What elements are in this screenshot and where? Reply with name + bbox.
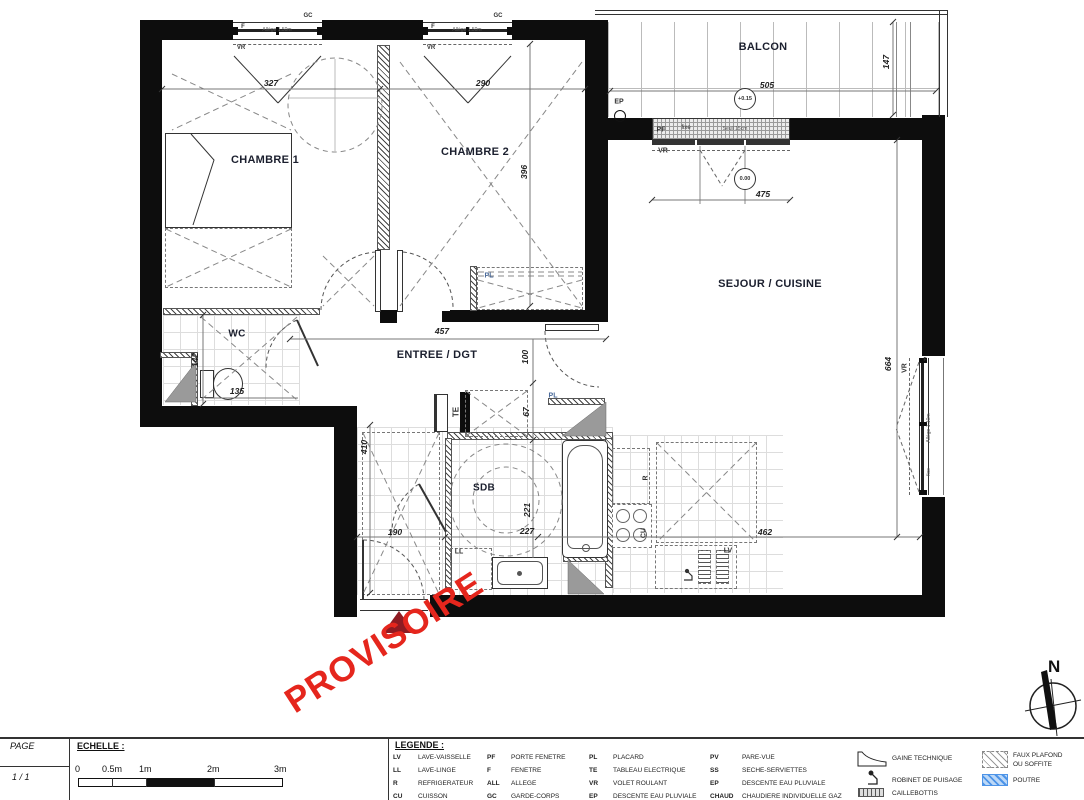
dim-327: 327 <box>264 78 278 88</box>
legend-symbol-label: ROBINET DE PUISAGE <box>892 777 962 784</box>
balcony-rail <box>939 10 940 117</box>
titleblock-line <box>0 737 1084 739</box>
partition-wall <box>470 266 477 311</box>
scale-tick-label: 2m <box>207 764 220 774</box>
floor-plan-page: CHAMBRE 1 CHAMBRE 2 BALCON SEJOUR / CUIS… <box>0 0 1084 800</box>
window-frame <box>423 27 428 35</box>
soffit-outline <box>362 432 440 595</box>
faux-plafond-icon <box>982 751 1008 768</box>
legend-label: DESCENTE EAU PLUVIALE <box>742 780 825 787</box>
dim-190: 190 <box>388 527 402 537</box>
door-leaf <box>397 250 403 312</box>
dim-147: 147 <box>881 55 891 69</box>
wall-segment <box>322 20 423 40</box>
dim-457: 457 <box>435 326 449 336</box>
legend-abbr: PF <box>487 754 495 761</box>
legend-label: SECHE-SERVIETTES <box>742 767 807 774</box>
hob-burner <box>616 509 630 523</box>
ep-label: EP <box>614 99 623 106</box>
te-label: TE <box>452 407 461 417</box>
dim-142: 142 <box>190 353 200 367</box>
sink-faucet <box>517 571 522 576</box>
legend-abbr: VR <box>589 780 598 787</box>
room-label-chambre2: CHAMBRE 2 <box>441 146 509 158</box>
pl-label: PL <box>549 393 558 400</box>
legend-abbr: EP <box>710 780 719 787</box>
dim-221: 221 <box>522 503 532 517</box>
legend-label: CUISSON <box>418 793 448 800</box>
allege-label: Allège 1.10m <box>926 413 932 442</box>
dim-505: 505 <box>760 80 774 90</box>
partition-wall <box>377 45 390 250</box>
room-label-wc: WC <box>228 329 245 340</box>
legend-abbr: PV <box>710 754 719 761</box>
porte-fenetre-threshold <box>652 118 790 140</box>
wall-segment <box>585 20 608 322</box>
balcony-col-line <box>910 22 911 117</box>
legend-label: LAVE-LINGE <box>418 767 456 774</box>
pl-label: PL <box>485 273 494 280</box>
legend-swatch-label: FAUX PLAFOND <box>1013 752 1062 759</box>
legend-abbr: CU <box>393 793 402 800</box>
placard-outline <box>465 390 528 437</box>
soffit-outline <box>165 228 292 288</box>
legend-symbol-label: GAINE TECHNIQUE <box>892 755 952 762</box>
dim-396: 396 <box>519 165 529 179</box>
fixe-label: fixe <box>681 125 690 131</box>
ep-pipe-icon <box>614 110 626 122</box>
scale-bar-tick <box>112 778 113 787</box>
door-panel <box>652 140 695 145</box>
legend-label: REFRIGERATEUR <box>418 780 473 787</box>
wall-segment <box>922 497 945 617</box>
wall-segment <box>430 595 945 617</box>
level-value: +0.15 <box>738 96 752 102</box>
titleblock-divider <box>388 737 389 800</box>
legend-abbr: LL <box>393 767 401 774</box>
room-label-sejour: SEJOUR / CUISINE <box>718 278 822 290</box>
scale-tick-label: 1m <box>139 764 152 774</box>
page-value: 1 / 1 <box>12 772 30 782</box>
legend-label: TABLEAU ELECTRIQUE <box>613 767 685 774</box>
gc-label: GC <box>494 13 503 19</box>
scale-tick-label: 0.5m <box>102 764 122 774</box>
ll-label: LL <box>455 549 464 556</box>
seuil-label: Seuil 15cm <box>723 126 748 132</box>
compass-north-label: N <box>1048 657 1060 677</box>
legend-abbr: PL <box>589 754 597 761</box>
caillebottis-rack <box>716 550 729 584</box>
legend-label: CHAUDIERE INDIVIDUELLE GAZ <box>742 793 842 800</box>
legend-label: ALLEGE <box>511 780 536 787</box>
allege-label: Allège 1.50m <box>452 27 481 33</box>
f-label: F <box>241 24 245 30</box>
legend-label: PLACARD <box>613 754 644 761</box>
room-label-balcon: BALCON <box>739 41 788 53</box>
legend-title: LEGENDE : <box>395 740 444 750</box>
legend-abbr: F <box>487 767 491 774</box>
lv-label: LV <box>724 548 732 555</box>
vr-label: VR <box>237 45 245 51</box>
scale-bar-fill <box>146 778 214 787</box>
room-label-sdb: SDB <box>473 483 495 494</box>
door-panel <box>697 140 744 145</box>
window-frame <box>317 27 322 35</box>
dim-475: 475 <box>756 189 770 199</box>
toilet-tank <box>200 370 214 398</box>
legend-symbol-label: CAILLEBOTTIS <box>892 790 938 797</box>
dim-410: 410 <box>359 440 369 454</box>
legend-swatch-label: OU SOFFITE <box>1013 761 1052 768</box>
legend-abbr: GC <box>487 793 497 800</box>
vr-label: VR <box>427 45 435 51</box>
wall-segment <box>334 406 357 617</box>
dim-135: 135 <box>230 386 244 396</box>
wall-jamb <box>380 310 397 323</box>
legend-label: GARDE-CORPS <box>511 793 559 800</box>
partition-wall <box>163 308 320 315</box>
caillebottis-icon <box>858 788 884 797</box>
bathtub-drain <box>582 544 590 552</box>
dim-462: 462 <box>758 527 772 537</box>
wall-jamb <box>442 311 452 322</box>
legend-abbr: LV <box>393 754 401 761</box>
r-label: R <box>643 475 650 480</box>
balcony-edge <box>595 10 948 11</box>
balcony-edge <box>595 14 948 15</box>
gc-label: GC <box>304 13 313 19</box>
dim-100: 100 <box>520 350 530 364</box>
window-sill-line <box>943 358 944 495</box>
vr-dashed-line <box>652 150 790 151</box>
legend-abbr: TE <box>589 767 597 774</box>
dim-67: 67 <box>521 407 531 416</box>
vr-dashed-line <box>909 358 910 495</box>
electrical-panel <box>434 394 448 432</box>
robinet-legend-icon <box>868 771 877 784</box>
wall-segment <box>790 118 922 140</box>
f-label: F <box>923 357 926 363</box>
caillebottis-rack <box>698 550 711 584</box>
room-label-entree: ENTREE / DGT <box>397 349 478 361</box>
scale-tick-label: 3m <box>274 764 287 774</box>
scale-label: ECHELLE : <box>77 741 125 751</box>
level-marker-balcon: +0.15 <box>734 88 756 110</box>
dim-290: 290 <box>476 78 490 88</box>
legend-label: FENETRE <box>511 767 541 774</box>
pf-label: PF <box>657 127 666 134</box>
window-frame <box>233 27 238 35</box>
vr-label: VR <box>658 148 668 155</box>
scale-bar-tick <box>146 778 147 787</box>
legend-abbr: CHAUD <box>710 793 733 800</box>
titleblock-divider <box>0 766 69 767</box>
legend-label: VOLET ROULANT <box>613 780 667 787</box>
window-frame <box>919 490 927 495</box>
level-marker-sejour: 0.00 <box>734 168 756 190</box>
door-panel <box>746 140 790 145</box>
legend-label: LAVE-VAISSELLE <box>418 754 471 761</box>
circle-cross-lines <box>289 59 381 151</box>
fixe-label: fixe <box>926 468 932 476</box>
wall-segment <box>450 310 585 322</box>
vr-label: VR <box>902 363 909 373</box>
scale-bar-tick <box>214 778 215 787</box>
wall-segment <box>140 406 357 427</box>
balcony-rail <box>947 10 948 117</box>
legend-abbr: SS <box>710 767 719 774</box>
bathtub-inner <box>567 445 603 549</box>
level-value: 0.00 <box>740 176 751 182</box>
legend-abbr: R <box>393 780 398 787</box>
legend-abbr: EP <box>589 793 598 800</box>
window-glass <box>921 360 924 493</box>
vr-dashed-line <box>233 44 322 45</box>
balcony-col-line <box>896 22 897 117</box>
balcony-tile-grid <box>608 22 940 117</box>
soffit-outline <box>656 442 757 543</box>
wall-segment <box>595 118 652 140</box>
gaine-technique-icon <box>858 752 886 766</box>
legend-swatch-label: POUTRE <box>1013 777 1040 784</box>
legend-label: DESCENTE EAU PLUVIALE <box>613 793 696 800</box>
legend-abbr: ALL <box>487 780 500 787</box>
hob-burner <box>633 509 647 523</box>
room-label-chambre1: CHAMBRE 1 <box>231 154 299 166</box>
dim-227: 227 <box>520 526 534 536</box>
bed <box>165 133 292 228</box>
dim-664: 664 <box>883 357 893 371</box>
legend-label: PORTE FENETRE <box>511 754 565 761</box>
window-frame <box>507 27 512 35</box>
titleblock-divider <box>69 737 70 800</box>
allege-label: Allège 1.50m <box>262 27 291 33</box>
cu-label: CU <box>641 528 648 538</box>
wall-segment <box>140 20 162 427</box>
scale-tick-label: 0 <box>75 764 80 774</box>
poutre-icon <box>982 774 1008 786</box>
page-label: PAGE <box>10 741 34 751</box>
f-label: F <box>431 24 435 30</box>
legend-label: PARE-VUE <box>742 754 775 761</box>
hob-burner <box>616 528 630 542</box>
wall-segment <box>922 115 945 356</box>
vr-dashed-line <box>423 44 512 45</box>
compass-icon <box>1025 670 1081 736</box>
door-leaf <box>545 324 599 331</box>
door-leaf <box>375 250 381 312</box>
